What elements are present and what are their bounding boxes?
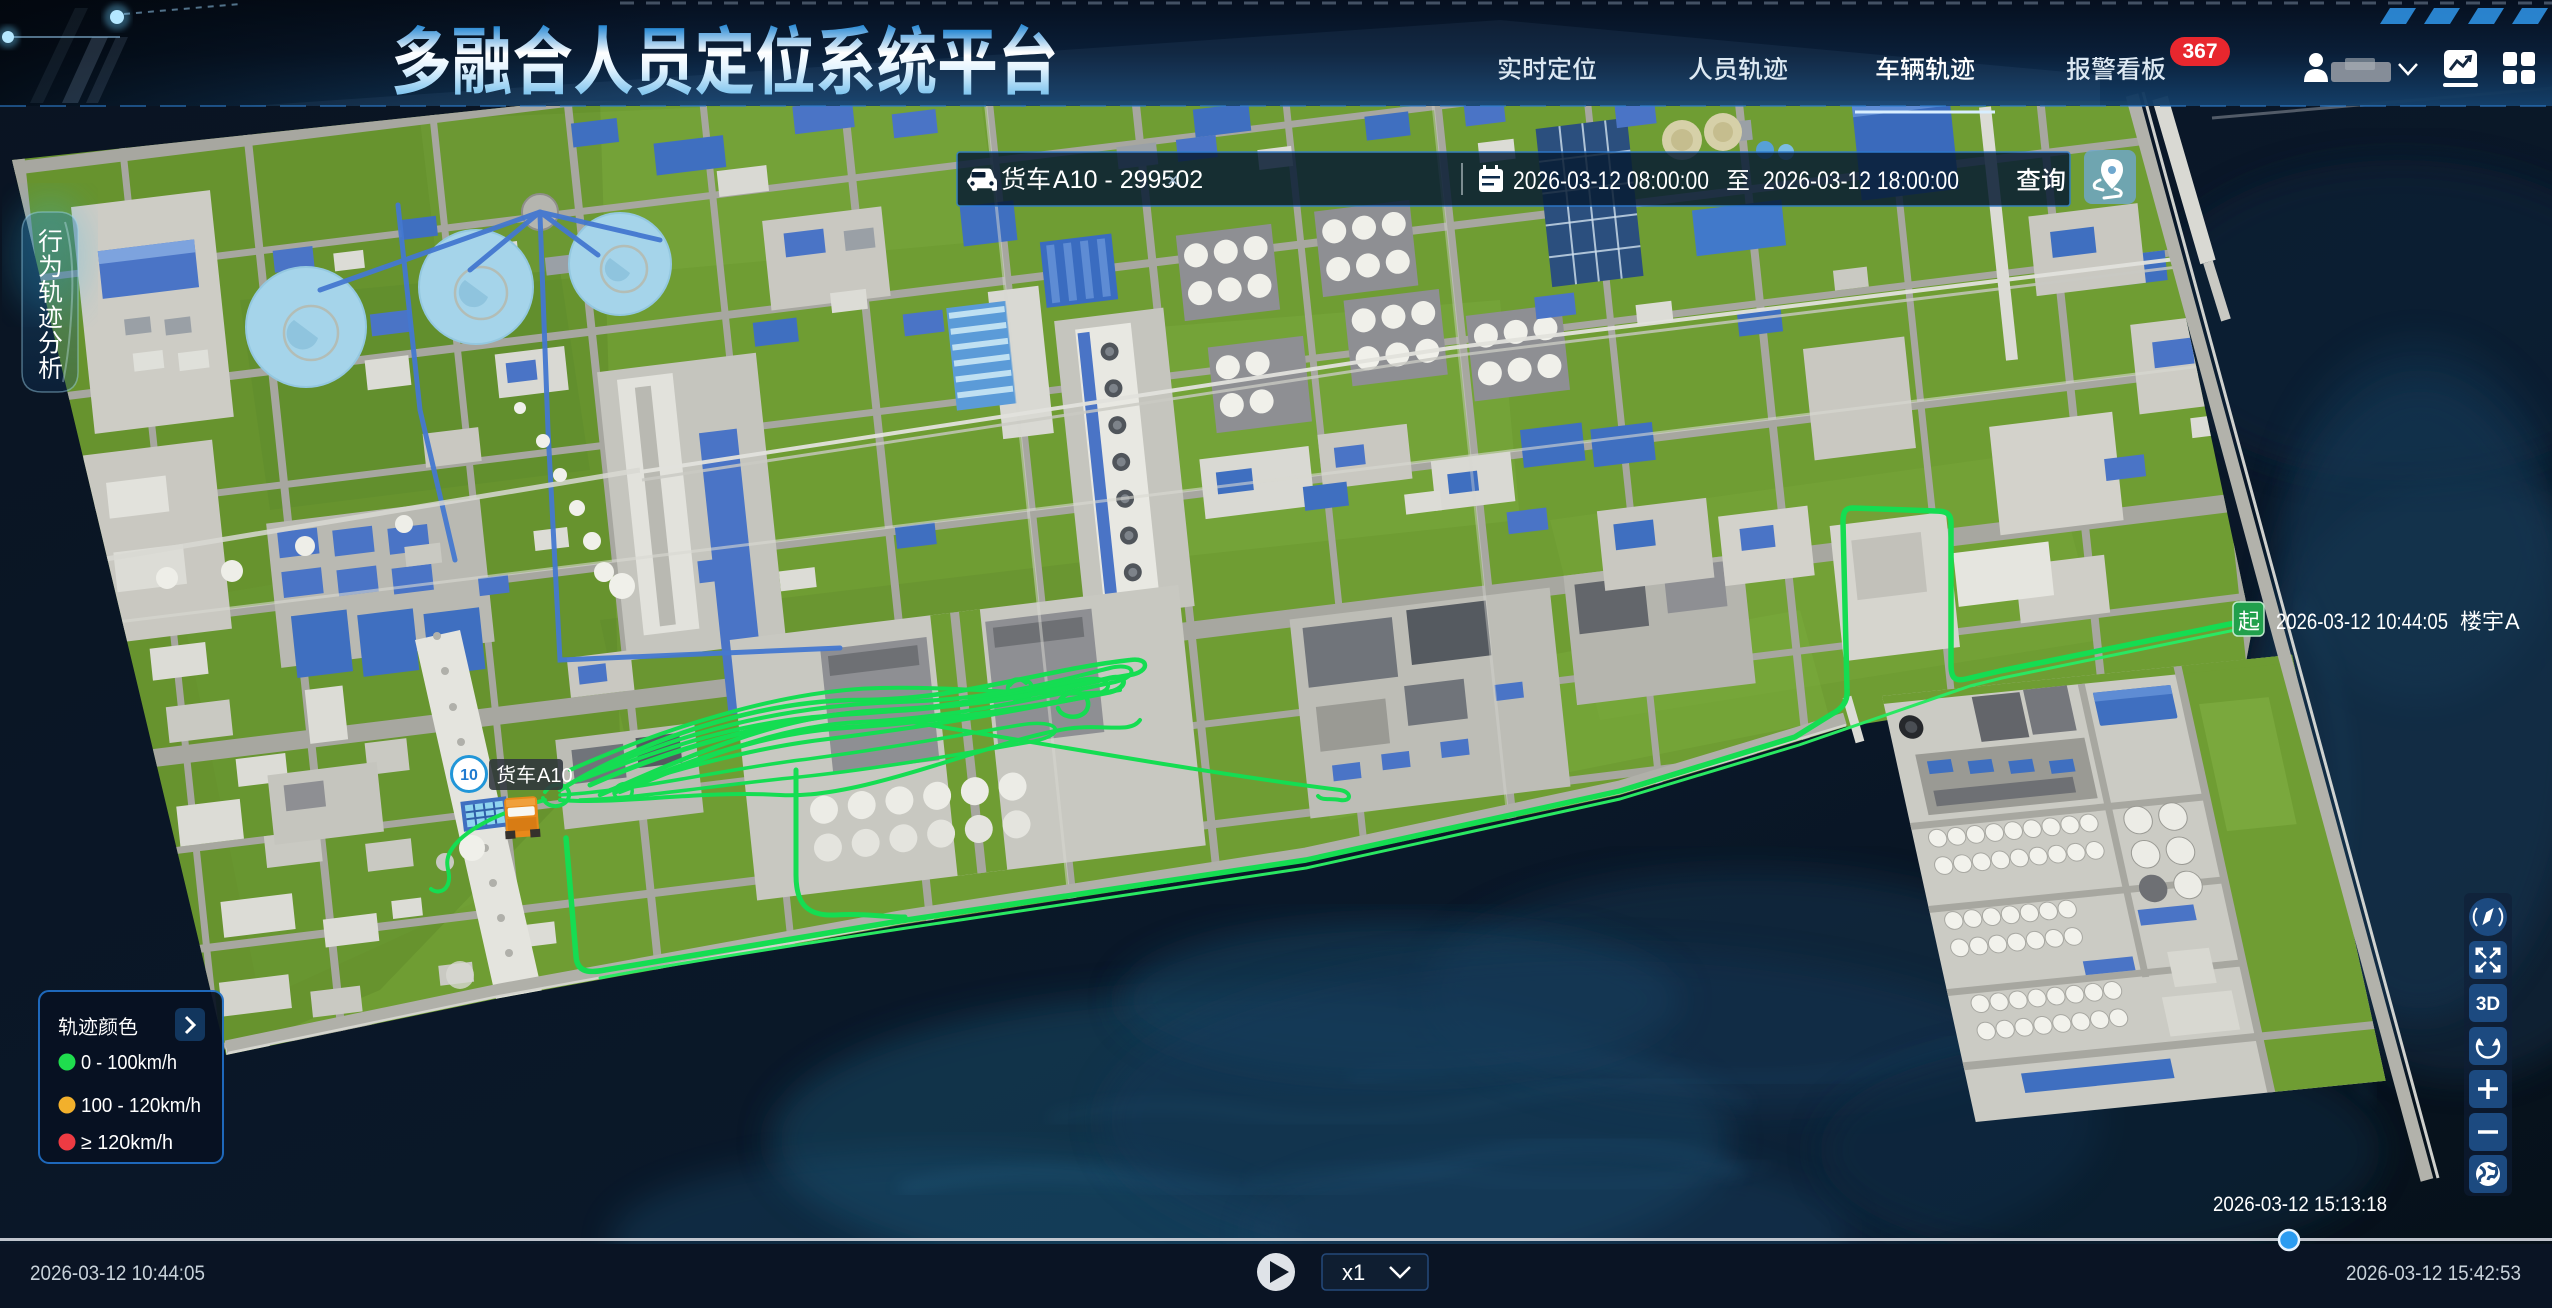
svg-text:3D: 3D — [2476, 994, 2500, 1015]
svg-text:A10: A10 — [537, 765, 573, 787]
svg-text:2026-03-12 15:13:18: 2026-03-12 15:13:18 — [2213, 1193, 2387, 1216]
svg-text:0 - 100km/h: 0 - 100km/h — [81, 1052, 177, 1074]
svg-text:2026-03-12 18:00:00: 2026-03-12 18:00:00 — [1763, 167, 1959, 195]
svg-text:2026-03-12 08:00:00: 2026-03-12 08:00:00 — [1513, 167, 1709, 195]
svg-text:×: × — [1167, 170, 1179, 192]
svg-text:x1: x1 — [1342, 1260, 1365, 1285]
svg-text:2026-03-12 15:42:53: 2026-03-12 15:42:53 — [2346, 1262, 2521, 1285]
svg-text:A: A — [2505, 609, 2520, 634]
svg-text:2026-03-12 10:44:05: 2026-03-12 10:44:05 — [30, 1262, 205, 1285]
svg-text:2026-03-12 10:44:05: 2026-03-12 10:44:05 — [2276, 609, 2448, 634]
svg-text:367: 367 — [2182, 40, 2217, 63]
svg-text:≥ 120km/h: ≥ 120km/h — [81, 1132, 173, 1154]
svg-text:100 - 120km/h: 100 - 120km/h — [81, 1095, 201, 1117]
svg-text:A10 - 299502: A10 - 299502 — [1053, 166, 1203, 194]
svg-text:10: 10 — [460, 767, 478, 784]
